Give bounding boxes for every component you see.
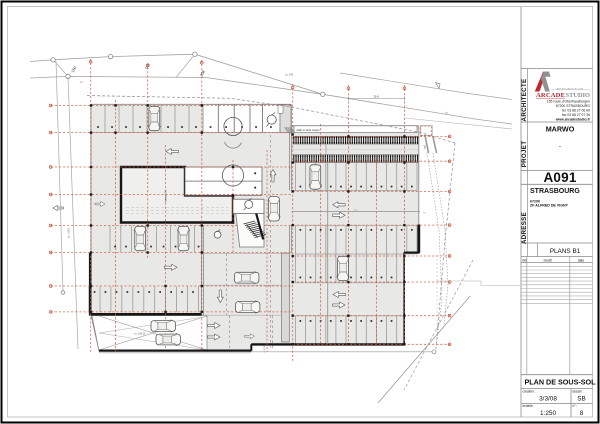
- svg-text:modif.: modif.: [544, 258, 553, 262]
- svg-text:ZF ALFRED DE VIGNY: ZF ALFRED DE VIGNY: [530, 204, 569, 208]
- svg-text:PLANS B1: PLANS B1: [550, 248, 581, 255]
- svg-text:t.n.: t.n.: [354, 209, 357, 212]
- svg-text:MARWO: MARWO: [546, 125, 575, 134]
- svg-text:dalle s/ streb niveau: dalle s/ streb niveau: [297, 128, 321, 132]
- svg-text:STRASBOURG: STRASBOURG: [530, 188, 580, 195]
- svg-text:SB: SB: [577, 396, 586, 403]
- svg-text:ADRESSE: ADRESSE: [521, 212, 528, 244]
- svg-text:création :: création :: [523, 389, 536, 393]
- svg-text:1:250: 1:250: [540, 410, 556, 417]
- svg-text:t.n. 143.5: t.n. 143.5: [68, 227, 71, 238]
- svg-text:155 route d'Oberhausbergen: 155 route d'Oberhausbergen: [547, 100, 590, 104]
- svg-text:date: date: [578, 258, 584, 262]
- svg-text:30.8: 30.8: [373, 94, 379, 98]
- svg-text:t.n. 143.20: t.n. 143.20: [134, 333, 146, 336]
- svg-text:STUDIO: STUDIO: [566, 92, 591, 99]
- svg-text:ARCHITECTE: ARCHITECTE: [521, 79, 528, 122]
- svg-text:n° :: n° :: [573, 404, 578, 408]
- svg-text:fax 03 88 27 07 36: fax 03 88 27 07 36: [562, 113, 590, 117]
- svg-text:www.arcadestudio.fr: www.arcadestudio.fr: [555, 118, 591, 122]
- svg-text:3/3/08: 3/3/08: [539, 396, 557, 403]
- svg-text:rampe 5%: rampe 5%: [164, 189, 168, 202]
- svg-text:A091: A091: [543, 170, 576, 185]
- svg-text:dessin :: dessin :: [573, 389, 584, 393]
- svg-text:67200: 67200: [530, 199, 540, 203]
- svg-text:PROJET: PROJET: [521, 141, 528, 168]
- svg-text:tel. 03 88 27 06 60: tel. 03 88 27 06 60: [562, 109, 590, 113]
- svg-text:t.n.: t.n.: [80, 81, 84, 84]
- svg-text:ARCADE: ARCADE: [536, 92, 566, 99]
- svg-text:67200 STRASBOURG: 67200 STRASBOURG: [556, 104, 590, 108]
- svg-text:PLAN DE SOUS-SOL: PLAN DE SOUS-SOL: [524, 378, 596, 387]
- svg-text:8: 8: [580, 410, 584, 417]
- svg-text:ATELIER D'ARCHITECTURE: ATELIER D'ARCHITECTURE: [557, 87, 584, 90]
- svg-text:t.n.: t.n.: [445, 112, 449, 115]
- svg-text:t.n. 143: t.n. 143: [285, 74, 294, 77]
- svg-text:échelle :: échelle :: [523, 404, 535, 408]
- svg-text:t.n.: t.n.: [423, 211, 426, 214]
